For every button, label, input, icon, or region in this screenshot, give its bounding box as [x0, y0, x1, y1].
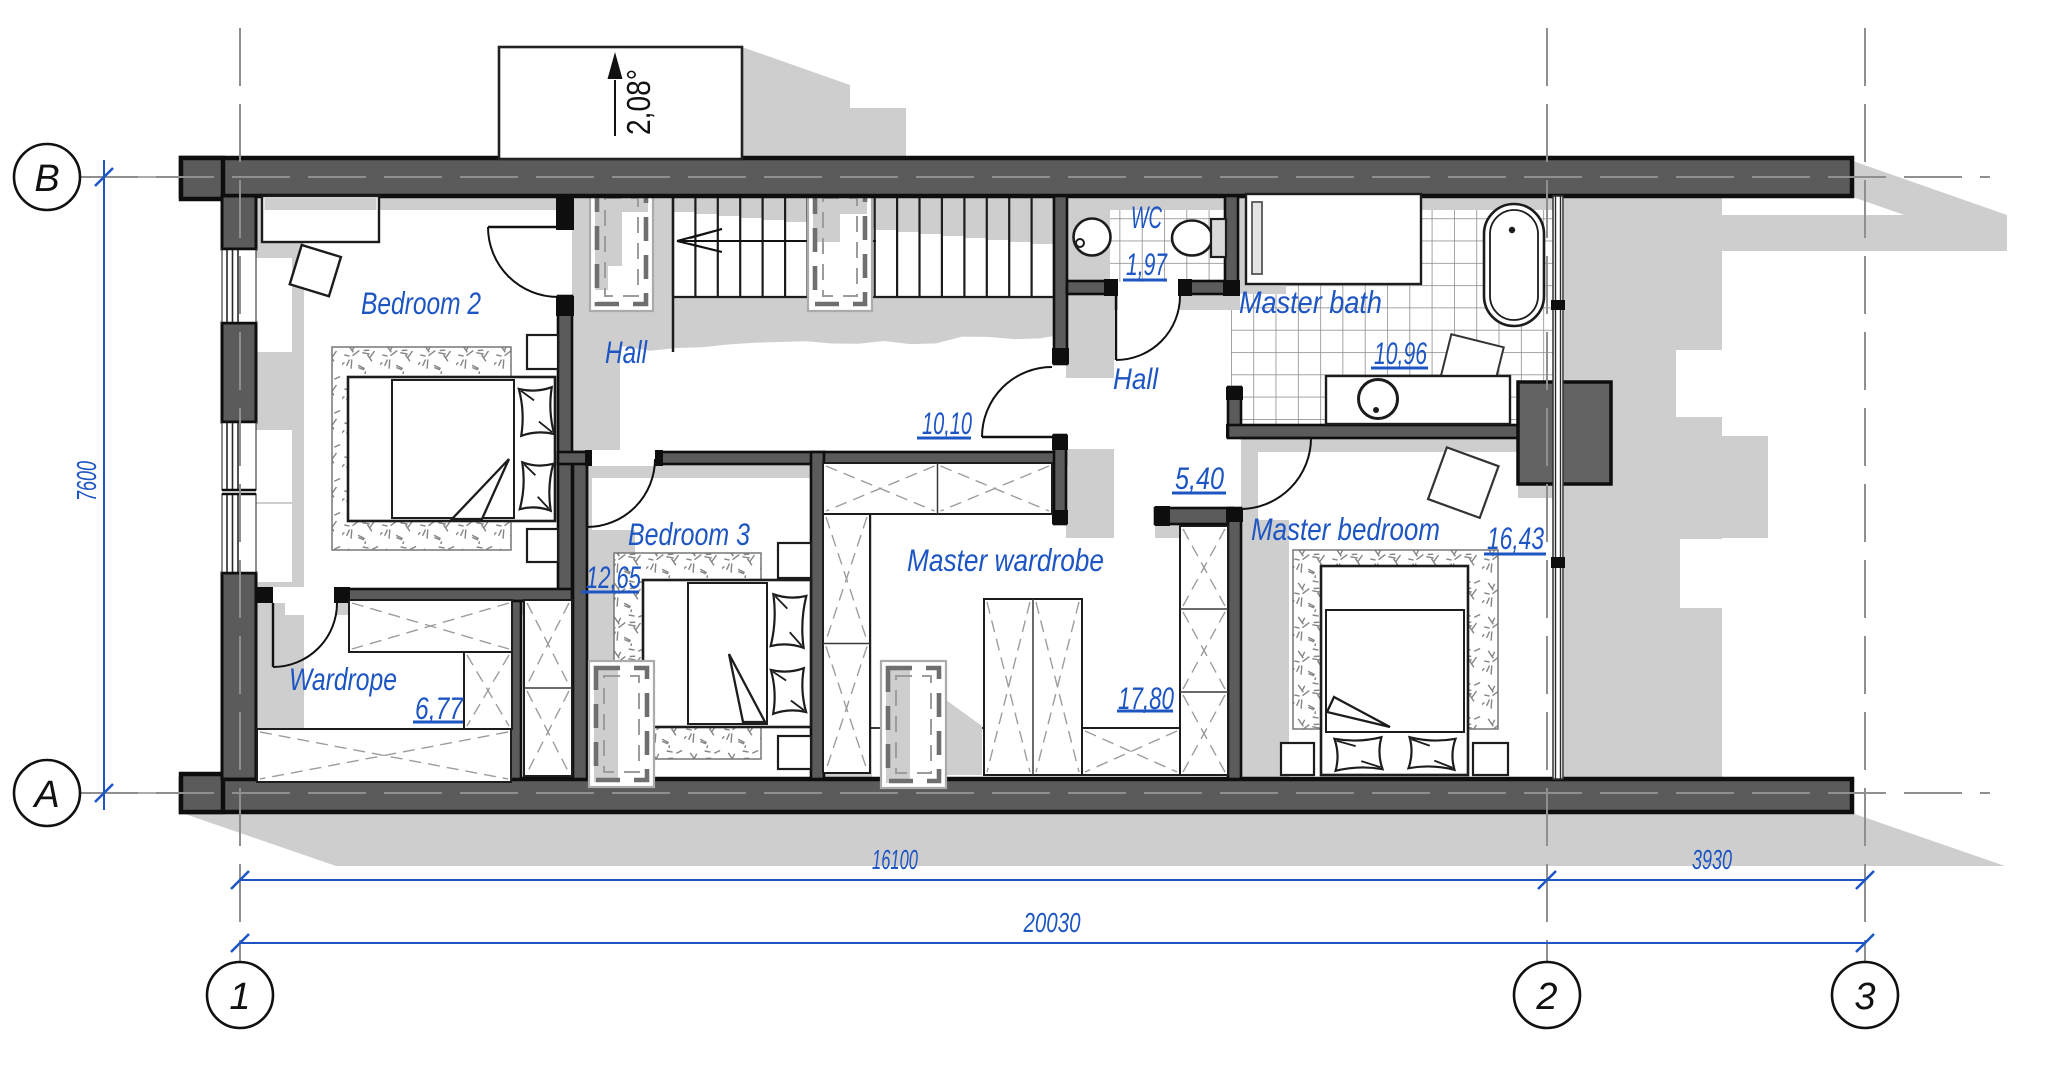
svg-text:10,96: 10,96	[1374, 335, 1427, 371]
svg-text:Bedroom 2: Bedroom 2	[361, 285, 481, 321]
svg-text:1,97: 1,97	[1126, 246, 1168, 282]
svg-text:Hall: Hall	[605, 334, 648, 370]
svg-text:Master bedroom: Master bedroom	[1251, 511, 1440, 547]
svg-text:A: A	[32, 774, 59, 816]
svg-text:3930: 3930	[1692, 844, 1732, 875]
svg-text:3: 3	[1854, 976, 1875, 1018]
svg-text:2: 2	[1535, 976, 1557, 1018]
svg-text:5,40: 5,40	[1175, 460, 1224, 496]
svg-text:10,10: 10,10	[922, 405, 972, 441]
svg-text:16100: 16100	[872, 844, 918, 875]
svg-text:16,43: 16,43	[1487, 520, 1544, 556]
svg-text:Master bath: Master bath	[1239, 284, 1382, 320]
svg-text:Hall: Hall	[1113, 363, 1159, 396]
svg-text:7600: 7600	[71, 461, 102, 501]
svg-text:Master wardrobe: Master wardrobe	[907, 542, 1104, 578]
svg-text:12,65: 12,65	[586, 559, 641, 595]
svg-text:WC: WC	[1131, 199, 1162, 235]
svg-text:1: 1	[229, 976, 250, 1018]
svg-text:Bedroom 3: Bedroom 3	[628, 516, 750, 552]
svg-text:Wardrope: Wardrope	[289, 661, 397, 697]
svg-text:2,08°: 2,08°	[620, 69, 657, 135]
svg-text:20030: 20030	[1023, 907, 1081, 938]
svg-text:B: B	[34, 158, 59, 200]
